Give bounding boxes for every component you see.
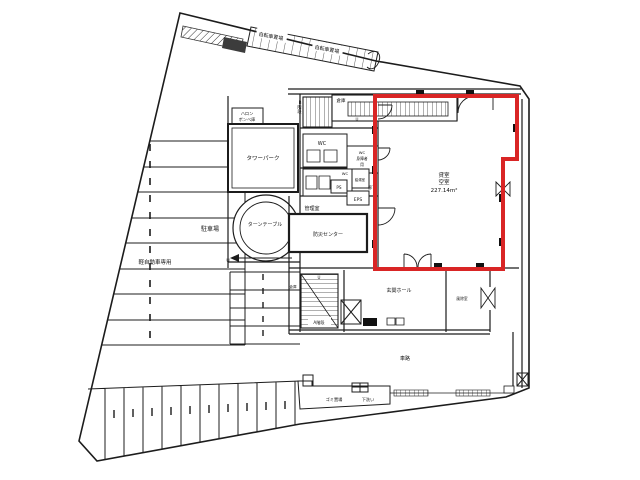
floorplan-canvas: 自転車置場 自転車置場 軽自動車専用 駐車場 ハロン ボンベ庫 タワーパーク [0,0,640,480]
label-wc-lower: WC [342,171,349,176]
label-u-stairs-a: U [318,275,321,280]
label-driveway: 車路 [400,355,410,362]
label-parking-lot: 駐車場 [201,225,219,233]
label-windbreak: 風除室 [456,296,468,301]
label-halon-1: ハロン [241,111,254,116]
label-storage-lower: 倉庫 [289,284,297,289]
stairs-b [303,97,332,127]
label-room-area: 227.14m² [431,187,458,194]
label-wash: 下洗い [362,396,375,403]
label-wc-acc-2: 身障者 [356,156,368,161]
label-room-name-2: 空室 [438,178,450,186]
label-entrance-hall: 玄関ホール [386,287,411,294]
label-u-stairs-b: U [356,117,359,122]
label-storage-top: 倉庫 [337,97,346,104]
label-kei-car-only: 軽自動車専用 [138,258,171,266]
label-stairs-a: A階段 [313,319,325,326]
label-halon-2: ボンベ庫 [239,116,256,123]
label-wc-acc-3: 用 [360,162,364,167]
label-wc-upper: WC [318,141,327,147]
label-wc-acc-1: WC [359,150,366,155]
label-admin-room: 管理室 [304,205,319,212]
ramp-treads [348,102,448,116]
label-eps: EPS [354,197,363,203]
label-stairs-b: B階段 [297,100,303,115]
label-garbage: ゴミ置場 [326,396,344,403]
label-room-name-1: 貸室 [438,171,450,179]
label-tower-park: タワーパーク [247,154,280,162]
black-equipment-box [363,318,377,326]
label-ps: PS [336,185,342,190]
label-disaster-center: 防災センター [313,231,343,238]
floor-plan-page: 自転車置場 自転車置場 軽自動車専用 駐車場 ハロン ボンベ庫 タワーパーク [0,0,640,480]
label-turntable: ターンテーブル [248,221,282,228]
label-hot-water: 給湯室 [355,177,366,182]
utility-box-bottom-right [504,386,514,393]
